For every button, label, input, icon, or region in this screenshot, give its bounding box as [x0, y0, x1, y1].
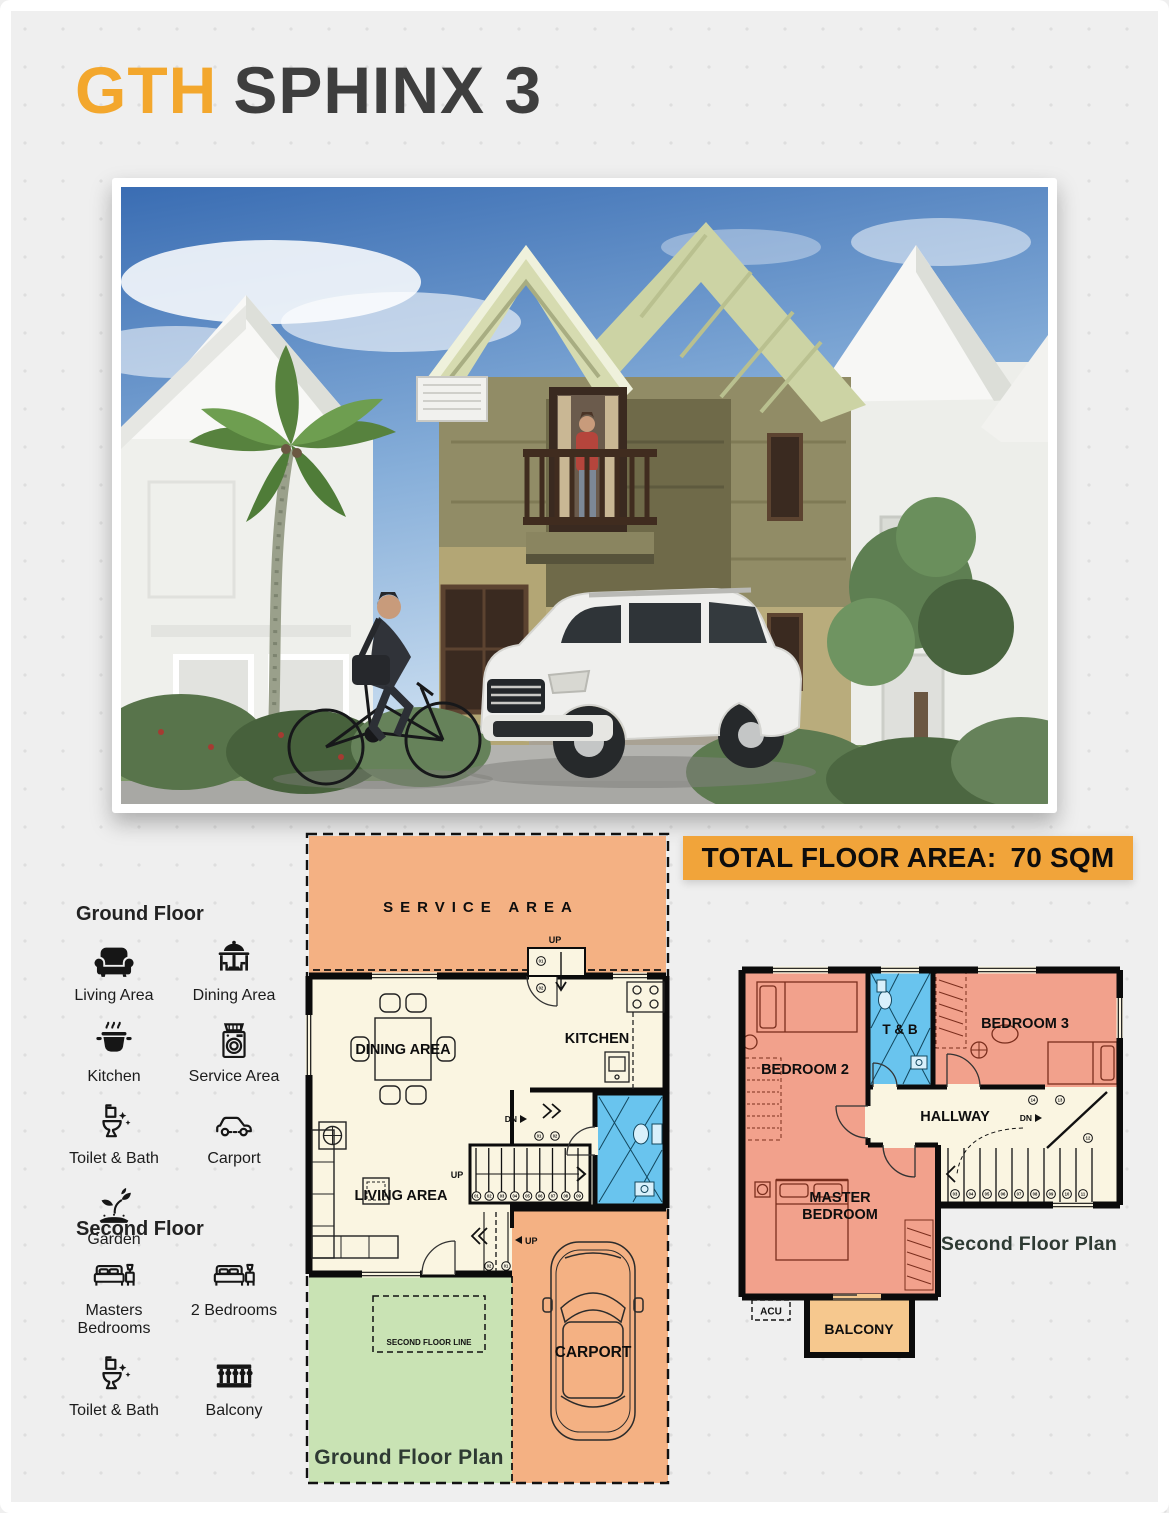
- model-name: SPHINX 3: [233, 53, 542, 127]
- legend-item-toilet-bath-sf: Toilet & Bath: [58, 1353, 170, 1420]
- svg-text:10: 10: [1065, 1192, 1070, 1197]
- svg-text:08: 08: [563, 1193, 568, 1198]
- legend-label: Carport: [207, 1150, 260, 1168]
- svg-text:11: 11: [1081, 1192, 1086, 1197]
- svg-text:01: 01: [537, 1133, 542, 1138]
- legend-label: Toilet & Bath: [69, 1402, 159, 1420]
- svg-text:09: 09: [576, 1193, 581, 1198]
- svg-text:12: 12: [1086, 1136, 1091, 1141]
- svg-text:01: 01: [504, 1263, 509, 1268]
- svg-text:05: 05: [985, 1192, 990, 1197]
- svg-text:01: 01: [474, 1193, 479, 1198]
- room-label-bedroom3: BEDROOM 3: [981, 1016, 1069, 1032]
- washing-machine-icon: [211, 1019, 257, 1065]
- up-label-stairs: UP: [451, 1170, 464, 1180]
- legend-label: Toilet & Bath: [69, 1150, 159, 1168]
- house-render-scene: [121, 187, 1048, 804]
- ground-floor-plan-caption: Ground Floor Plan: [314, 1446, 503, 1469]
- bed-icon: [91, 1253, 137, 1299]
- dining-table-icon: [211, 938, 257, 984]
- acu-label: ACU: [760, 1307, 782, 1318]
- car-icon: [211, 1101, 257, 1147]
- svg-text:06: 06: [1001, 1192, 1006, 1197]
- svg-text:04: 04: [969, 1192, 974, 1197]
- room-label-hallway: HALLWAY: [920, 1109, 990, 1125]
- ground-floor-heading: Ground Floor: [76, 903, 310, 926]
- second-floor-plan: 030405060708091011 1413 12 DN ACU BEDROO…: [733, 958, 1123, 1398]
- room-label-dining-area: DINING AREA: [355, 1042, 451, 1058]
- second-floor-heading: Second Floor: [76, 1218, 310, 1241]
- legend-item-toilet-bath-gf: Toilet & Bath: [58, 1101, 170, 1168]
- second-floor-legend: Second Floor Masters Bedrooms: [58, 1218, 310, 1420]
- legend-item-living-area: Living Area: [58, 938, 170, 1005]
- svg-text:05: 05: [525, 1193, 530, 1198]
- up-label-entry: UP: [525, 1236, 538, 1246]
- balustrade-icon: [211, 1353, 257, 1399]
- banner-label: TOTAL FLOOR AREA:: [702, 842, 997, 874]
- ground-floor-plan-drawing: SECOND FLOOR LINE: [303, 830, 672, 1490]
- room-label-kitchen: KITCHEN: [565, 1031, 629, 1047]
- ac-unit: [417, 377, 487, 421]
- flyer-canvas: GTHSPHINX 3: [0, 0, 1169, 1513]
- cooking-pot-icon: [91, 1019, 137, 1065]
- svg-text:03: 03: [500, 1193, 505, 1198]
- svg-text:02: 02: [553, 1133, 558, 1138]
- ground-floor-legend: Ground Floor Living Area: [58, 903, 310, 1250]
- brand-name: GTH: [75, 53, 217, 127]
- ground-floor-plan: SECOND FLOOR LINE: [303, 830, 672, 1490]
- second-floor-plan-caption: Second Floor Plan: [941, 1233, 1117, 1255]
- legend-label: Dining Area: [193, 987, 276, 1005]
- legend-label: Living Area: [74, 987, 153, 1005]
- room-label-carport: CARPORT: [555, 1344, 632, 1361]
- svg-text:03: 03: [953, 1192, 958, 1197]
- room-label-master-2: BEDROOM: [802, 1207, 878, 1223]
- legend-item-masters-bedrooms: Masters Bedrooms: [58, 1253, 170, 1339]
- toilet-icon: [91, 1353, 137, 1399]
- legend-item-service-area: Service Area: [170, 1019, 298, 1086]
- dn-label: DN: [505, 1114, 517, 1124]
- svg-text:13: 13: [1058, 1098, 1063, 1103]
- bed-icon: [211, 1253, 257, 1299]
- room-label-living-area: LIVING AREA: [355, 1188, 448, 1204]
- legend-label: Service Area: [189, 1068, 280, 1086]
- house-exterior-render: [112, 178, 1057, 813]
- svg-text:02: 02: [487, 1193, 492, 1198]
- room-label-master-1: MASTER: [809, 1190, 871, 1206]
- legend-item-2-bedrooms: 2 Bedrooms: [170, 1253, 298, 1339]
- legend-label: 2 Bedrooms: [191, 1302, 277, 1320]
- banner-value: 70 SQM: [1010, 842, 1114, 874]
- svg-text:04: 04: [512, 1193, 517, 1198]
- svg-text:02: 02: [539, 986, 544, 991]
- toilet-icon: [91, 1101, 137, 1147]
- svg-text:14: 14: [1031, 1098, 1036, 1103]
- room-label-service-area: SERVICE AREA: [383, 899, 579, 916]
- svg-text:02: 02: [487, 1263, 492, 1268]
- svg-text:01: 01: [539, 959, 544, 964]
- room-label-bedroom2: BEDROOM 2: [761, 1062, 849, 1078]
- sofa-icon: [91, 938, 137, 984]
- room-label-tb: T & B: [882, 1022, 917, 1037]
- legend-item-dining-area: Dining Area: [170, 938, 298, 1005]
- svg-text:07: 07: [1017, 1192, 1022, 1197]
- legend-label: Kitchen: [87, 1068, 140, 1086]
- svg-text:09: 09: [1049, 1192, 1054, 1197]
- page-title: GTHSPHINX 3: [75, 52, 542, 128]
- room-label-balcony: BALCONY: [824, 1321, 894, 1337]
- legend-label: Masters Bedrooms: [58, 1302, 170, 1339]
- svg-text:08: 08: [1033, 1192, 1038, 1197]
- legend-item-carport: Carport: [170, 1101, 298, 1168]
- up-label-service: UP: [549, 935, 562, 945]
- stairs-region: [938, 1145, 1120, 1205]
- second-floor-plan-drawing: 030405060708091011 1413 12 DN ACU BEDROO…: [733, 958, 1123, 1398]
- dn-label: DN: [1020, 1113, 1032, 1123]
- svg-text:06: 06: [538, 1193, 543, 1198]
- legend-item-balcony: Balcony: [170, 1353, 298, 1420]
- svg-text:07: 07: [551, 1193, 556, 1198]
- acu-box: ACU: [752, 1300, 790, 1320]
- legend-item-kitchen: Kitchen: [58, 1019, 170, 1086]
- second-floor-line-label: SECOND FLOOR LINE: [387, 1338, 473, 1347]
- total-floor-area-banner: TOTAL FLOOR AREA: 70 SQM: [683, 836, 1133, 880]
- legend-label: Balcony: [206, 1402, 263, 1420]
